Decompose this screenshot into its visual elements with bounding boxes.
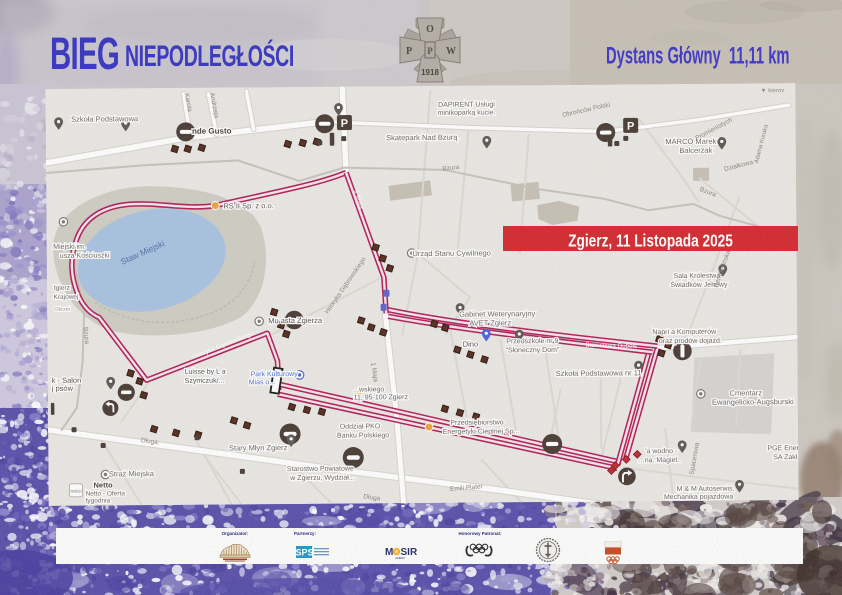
svg-text:netto: netto [70,489,81,495]
svg-text:P: P [341,118,348,130]
svg-text:Mu asta Zgierza: Mu asta Zgierza [268,316,323,325]
svg-text:Gabinet Weterynaryjny: Gabinet Weterynaryjny [459,309,535,319]
svg-text:Park Kulturowy: Park Kulturowy [251,371,299,378]
svg-text:'a wodno -: 'a wodno - [645,448,678,455]
svg-text:P: P [406,46,412,57]
svg-text:Przedsiębiorstwo: Przedsiębiorstwo [450,419,503,426]
svg-text:Cmentarz: Cmentarz [729,388,762,397]
svg-text:Dino: Dino [463,340,479,349]
svg-text:usza Kościuszki: usza Kościuszki [60,252,110,259]
svg-text:SA Zakł: SA Zakł [773,454,798,461]
svg-text:MARCO Marek: MARCO Marek [665,137,716,146]
svg-text:AVET Zgierz: AVET Zgierz [469,318,511,327]
svg-text:oraz prodów dojazd.: oraz prodów dojazd. [659,338,722,345]
svg-text:SPS: SPS [296,548,314,558]
svg-text:minikoparką kucie.: minikoparką kucie. [438,109,496,116]
svg-text:Przedszkole nr 9: Przedszkole nr 9 [506,338,558,345]
svg-text:"Słoneczny Dom": "Słoneczny Dom" [505,347,560,354]
svg-text:Starostwo Powiatowe: Starostwo Powiatowe [287,466,354,474]
svg-text:Mechanika pojazdowa: Mechanika pojazdowa [664,494,733,502]
svg-text:Oddział PKO: Oddział PKO [340,423,381,430]
svg-text:w Zgierzu, Wydział...: w Zgierzu, Wydział... [289,475,355,483]
svg-text:Szkoła Podstawowa nr 11: Szkoła Podstawowa nr 11 [556,368,642,378]
svg-text:Stanisława Dubois: Stanisława Dubois [585,342,637,350]
svg-text:Stary Młyn Zgierz: Stary Młyn Zgierz [229,443,288,452]
svg-text:Straż Miejska: Straż Miejska [109,469,155,478]
svg-text:Szkoła Podstawowa: Szkoła Podstawowa [71,114,139,124]
svg-text:M & M Autoserwis.: M & M Autoserwis. [677,486,735,493]
svg-text:nde Gusto: nde Gusto [192,126,232,135]
svg-text:Energetyki Cieplnej Sp...: Energetyki Cieplnej Sp... [443,428,520,436]
svg-text:Okrzei: Okrzei [54,307,70,313]
svg-text:Skatepark Nad Bzurą: Skatepark Nad Bzurą [386,133,458,143]
svg-text:P: P [627,121,634,133]
svg-text:1918: 1918 [421,68,439,77]
svg-text:Banku Polskiego: Banku Polskiego [337,432,389,439]
svg-text:Luisse by L a: Luisse by L a [185,369,226,376]
svg-text:P: P [427,46,433,56]
svg-text:Ewangelicko-Augsburski: Ewangelicko-Augsburski [712,397,794,407]
svg-text:...wskiego: ...wskiego [353,386,384,393]
svg-text:PGE Ener: PGE Ener [767,445,798,452]
svg-text:11, 95-100 Zgierz: 11, 95-100 Zgierz [354,394,409,401]
svg-text:Napri a Komputerów: Napri a Komputerów [652,329,717,337]
svg-text:Balcerzak: Balcerzak [679,146,712,155]
svg-text:ZGIERZ: ZGIERZ [395,556,405,559]
svg-text:Krajowej: Krajowej [54,294,79,301]
svg-text:Urząd Stanu Cywilnego: Urząd Stanu Cywilnego [412,248,490,258]
svg-text:O: O [426,24,434,35]
svg-text:M: M [385,547,393,558]
svg-text:Netto: Netto [93,480,113,489]
svg-text:W: W [446,46,456,57]
svg-text:tygodnia: tygodnia [86,497,111,504]
svg-text:tgierz: tgierz [54,285,70,292]
svg-text:▼ kierov: ▼ kierov [761,88,785,94]
svg-text:Szymczuk/...: Szymczuk/... [185,378,225,385]
svg-text:j psów: j psów [51,384,74,393]
svg-text:DAPIRENT Usługi: DAPIRENT Usługi [438,101,495,108]
svg-text:RS II Sp. z o.o.: RS II Sp. z o.o. [223,201,274,210]
svg-text:…na. Magiel..: …na. Magiel.. [638,457,681,464]
svg-text:Mias o...: Mias o... [249,379,276,386]
svg-text:Miejski im.: Miejski im. [53,244,86,251]
svg-text:Sala Królestwa: Sala Królestwa [673,273,720,280]
